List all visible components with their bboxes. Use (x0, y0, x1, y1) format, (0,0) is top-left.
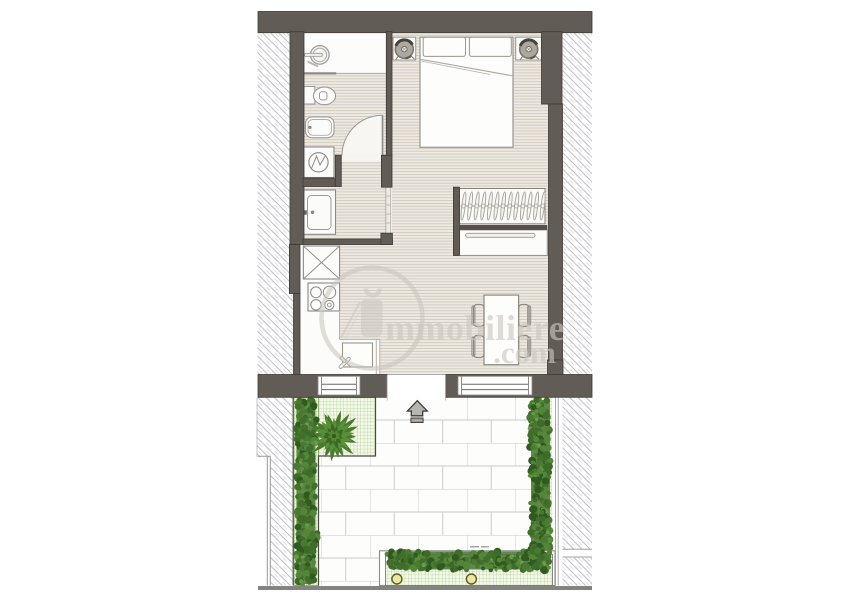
svg-text:.com: .com (493, 335, 556, 370)
